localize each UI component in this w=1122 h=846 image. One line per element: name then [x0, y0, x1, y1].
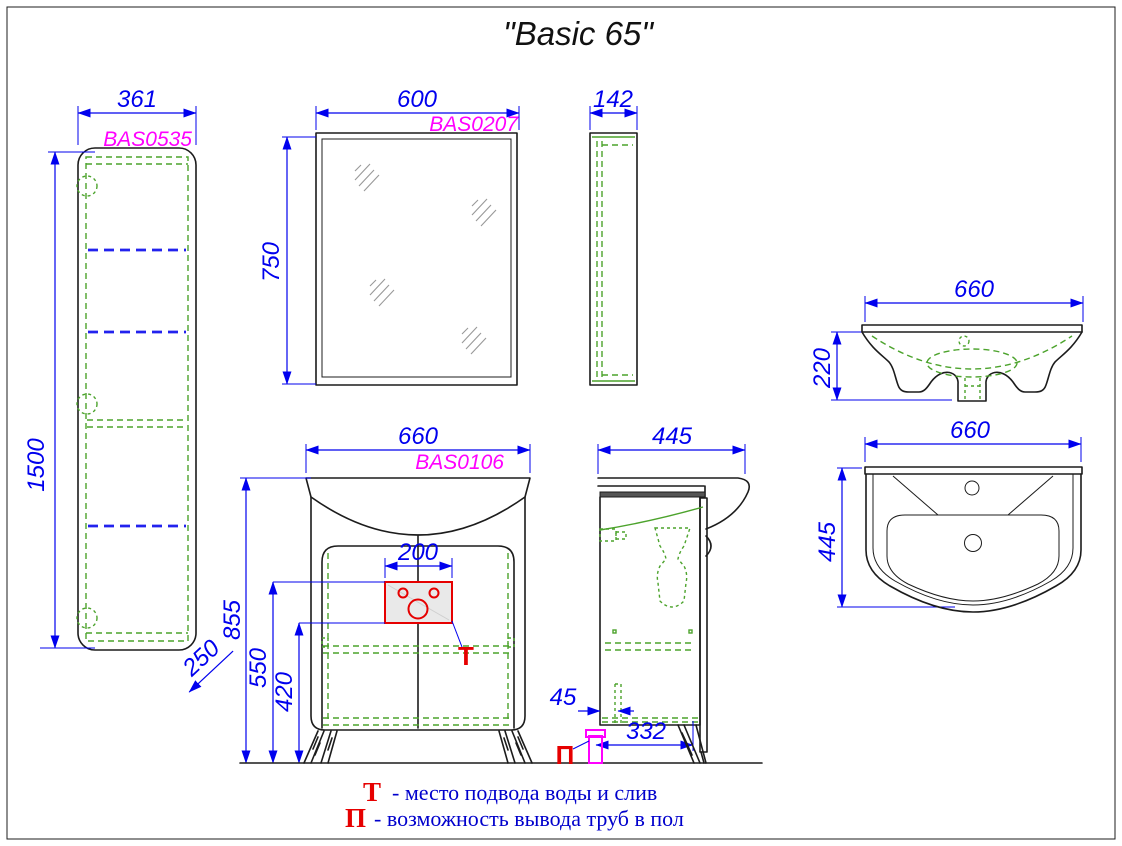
view-vanity-front: 660 BAS0106 200 Т 855 550 420: [219, 423, 532, 763]
dim-basin-top-width: 660: [950, 417, 991, 444]
view-washbasin-top: 660 445: [814, 417, 1082, 612]
overflow-hole: [959, 336, 969, 346]
drawing-canvas: "Basic 65" 361 BAS0535 1500 250: [0, 0, 1122, 846]
hinge-icon: [77, 176, 97, 196]
legend: Т - место подвода воды и слив П - возмож…: [345, 777, 684, 833]
washbasin-front-outline: [862, 332, 1082, 401]
view-vanity-side: 445 45 332 П: [550, 423, 750, 770]
basin-bowl-outline: [887, 515, 1059, 601]
dim-basin-height: 220: [809, 347, 836, 389]
page-title: "Basic 65": [503, 15, 654, 52]
dim-supply-bottom-height: 420: [271, 671, 298, 712]
legend-symbol-P: П: [345, 803, 366, 833]
vanity-legs: [304, 731, 532, 763]
siphon-trap: [655, 528, 690, 607]
view-side-cabinet: 361 BAS0535 1500 250: [23, 86, 233, 692]
dim-cabinet-height: 1500: [23, 438, 50, 492]
dim-mirror-depth: 142: [593, 86, 633, 113]
dim-vanity-width: 660: [398, 423, 439, 450]
vanity-basin-front: [306, 478, 530, 535]
dim-vanity-total-height: 855: [219, 599, 246, 640]
dim-vanity-depth: 445: [652, 423, 693, 450]
dim-pipe-to-front: 332: [626, 718, 666, 745]
floor-pipe: [589, 736, 602, 763]
code-vanity: BAS0106: [415, 451, 504, 474]
view-mirror-front: 600 BAS0207 750: [258, 86, 519, 385]
drain-hole: [965, 535, 982, 552]
hinge-icon: [77, 394, 97, 414]
hinge-icon: [77, 608, 97, 628]
marker-T: Т: [458, 641, 474, 671]
dim-mirror-height: 750: [258, 241, 285, 282]
mirror-side-body: [590, 133, 637, 385]
dim-basin-top-depth: 445: [814, 521, 841, 562]
legend-text-T: - место подвода воды и слив: [392, 780, 657, 805]
hinge-icon: [600, 529, 616, 541]
dim-cabinet-width: 361: [117, 86, 157, 113]
technical-drawing-page: "Basic 65" 361 BAS0535 1500 250: [0, 0, 1122, 846]
view-mirror-side: 142: [590, 86, 637, 385]
marker-P: П: [556, 740, 575, 770]
basin-side-profile: [598, 478, 749, 529]
legend-text-P: - возможность вывода труб в пол: [374, 806, 684, 831]
dim-basin-width: 660: [954, 276, 995, 303]
dim-supply-zone-width: 200: [397, 539, 439, 566]
dim-supply-top-height: 550: [245, 647, 272, 688]
faucet-hole: [965, 481, 979, 495]
dim-pipe-wall-offset: 45: [550, 684, 577, 711]
dim-cabinet-depth: 250: [177, 634, 226, 682]
view-washbasin-front: 660 220: [809, 276, 1083, 401]
vanity-side-legs: [678, 725, 706, 763]
mirror-frame: [316, 133, 517, 385]
dim-mirror-width: 600: [397, 86, 438, 113]
side-cabinet-body: [78, 148, 196, 650]
